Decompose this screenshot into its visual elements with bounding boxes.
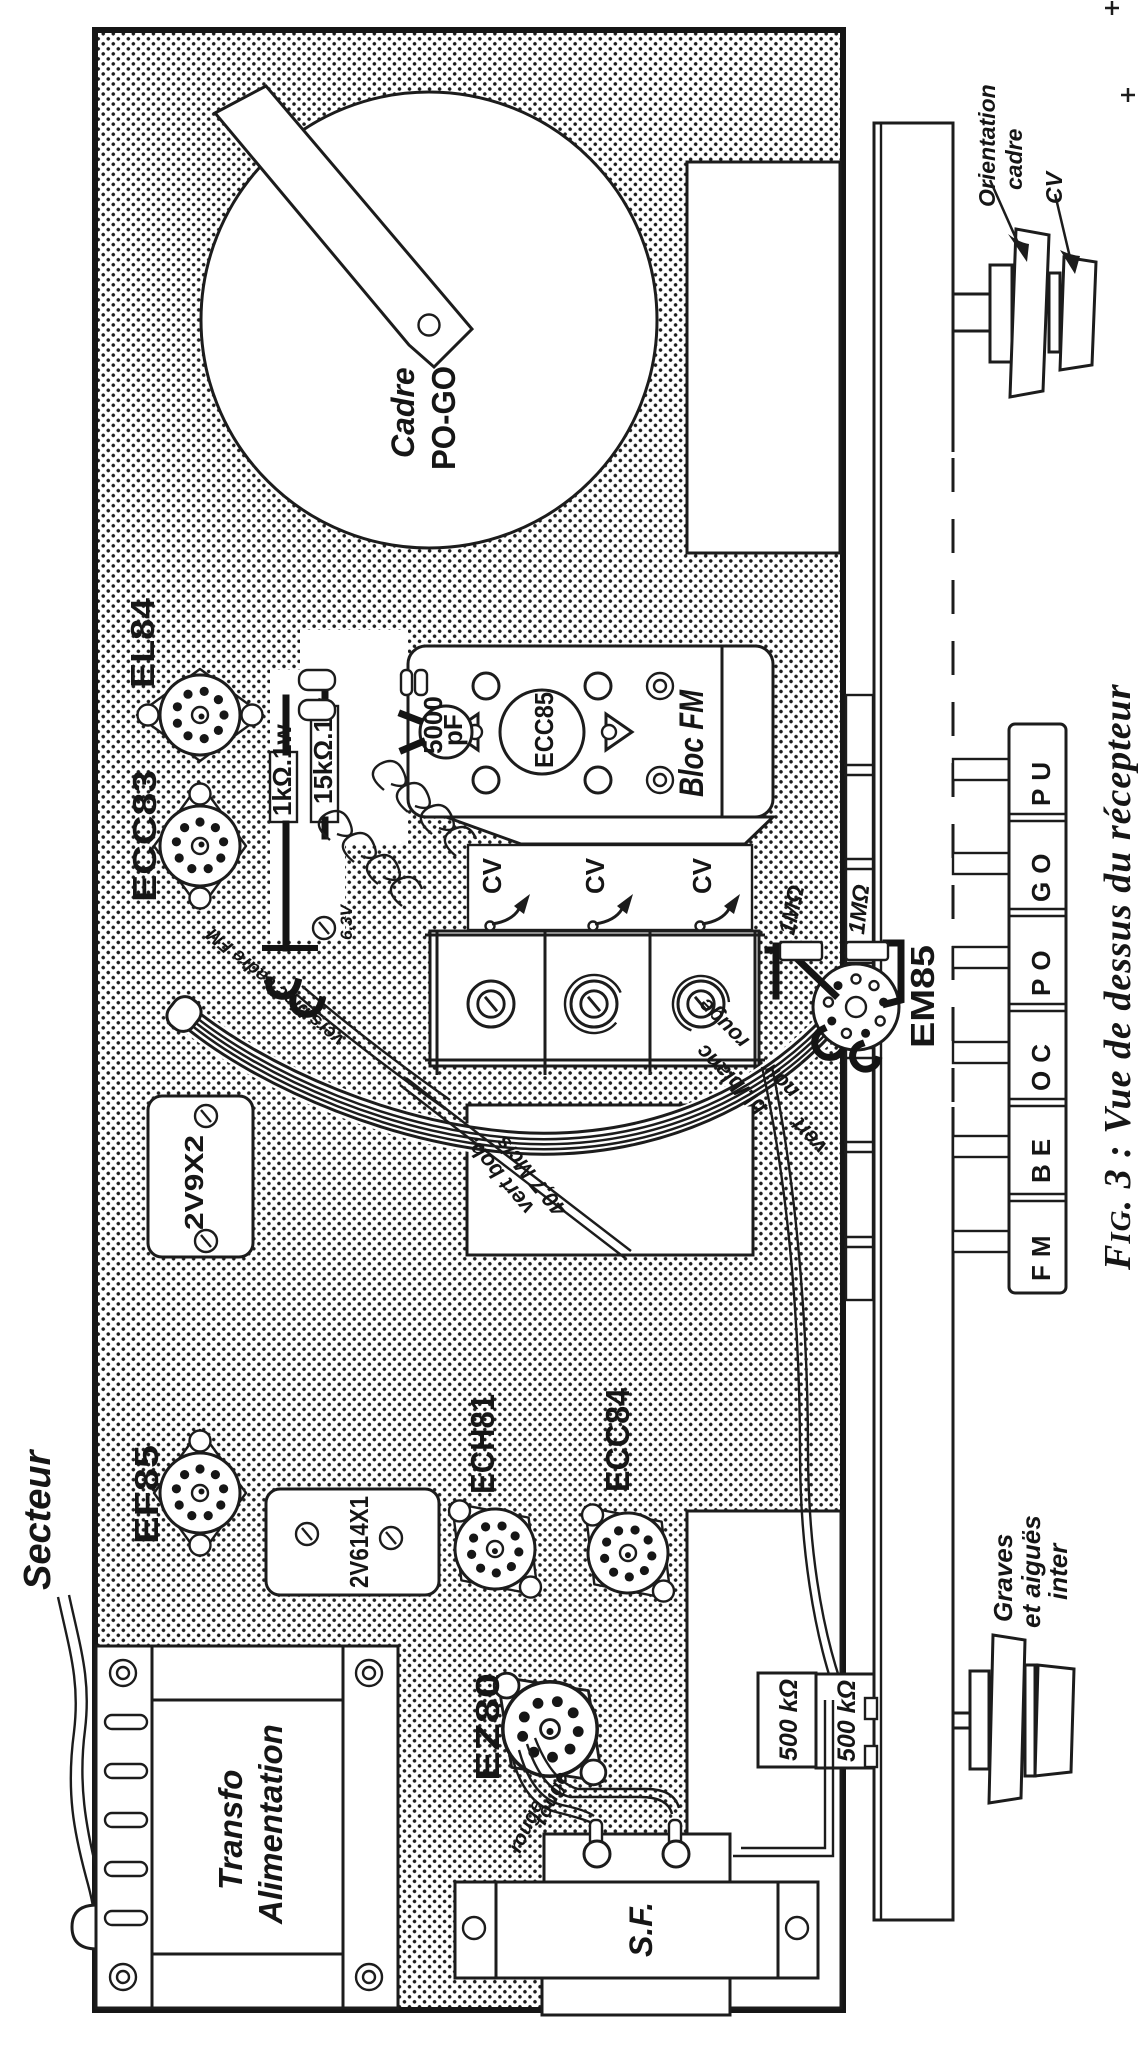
svg-text:1MΩ: 1MΩ [843, 883, 874, 935]
svg-text:FIG. 3 : Vue de dessus du réce: FIG. 3 : Vue de dessus du récepteur [1097, 683, 1139, 1271]
svg-text:cadre: cadre [1001, 128, 1027, 190]
svg-text:FM: FM [1026, 1227, 1056, 1281]
svg-text:pF: pF [438, 714, 468, 746]
svg-text:Bloc FM: Bloc FM [673, 689, 711, 797]
svg-text:PU: PU [1026, 754, 1056, 806]
svg-text:et aiguës: et aiguës [1016, 1515, 1046, 1628]
svg-text:ECC83: ECC83 [126, 770, 163, 902]
svg-text:Secteur: Secteur [17, 1448, 59, 1590]
svg-text:EM85: EM85 [904, 945, 941, 1048]
svg-text:EZ80: EZ80 [469, 1673, 506, 1781]
svg-text:500 kΩ: 500 kΩ [775, 1679, 803, 1761]
svg-text:Cadre: Cadre [385, 367, 421, 458]
svg-text:EF85: EF85 [128, 1445, 165, 1544]
svg-text:OC: OC [1026, 1036, 1056, 1091]
svg-text:Alimentation: Alimentation [252, 1724, 289, 1925]
svg-text:GO: GO [1026, 846, 1056, 902]
svg-text:CV: CV [1041, 170, 1067, 204]
svg-text:Graves: Graves [988, 1534, 1018, 1622]
svg-text:CV: CV [477, 857, 507, 894]
svg-text:ECH81: ECH81 [464, 1394, 501, 1494]
svg-text:Transfo: Transfo [212, 1770, 249, 1890]
svg-text:PO-GO: PO-GO [425, 366, 462, 470]
svg-text:CV: CV [580, 857, 610, 894]
svg-text:1kΩ.1w: 1kΩ.1w [267, 724, 297, 816]
svg-text:BE: BE [1026, 1131, 1056, 1183]
svg-text:Orientation: Orientation [974, 84, 1000, 207]
svg-text:S.F.: S.F. [623, 1902, 659, 1957]
svg-text:2V9X2: 2V9X2 [179, 1135, 209, 1230]
svg-text:PO: PO [1026, 942, 1056, 996]
svg-text:CV: CV [687, 857, 717, 894]
svg-text:ECC84: ECC84 [599, 1387, 636, 1492]
svg-text:2V614X1: 2V614X1 [344, 1496, 374, 1588]
svg-text:ECC85: ECC85 [529, 692, 559, 768]
svg-text:inter: inter [1043, 1542, 1073, 1600]
svg-text:6,3V: 6,3V [337, 903, 356, 940]
svg-text:500 kΩ: 500 kΩ [833, 1680, 861, 1762]
svg-text:EL84: EL84 [124, 597, 161, 688]
